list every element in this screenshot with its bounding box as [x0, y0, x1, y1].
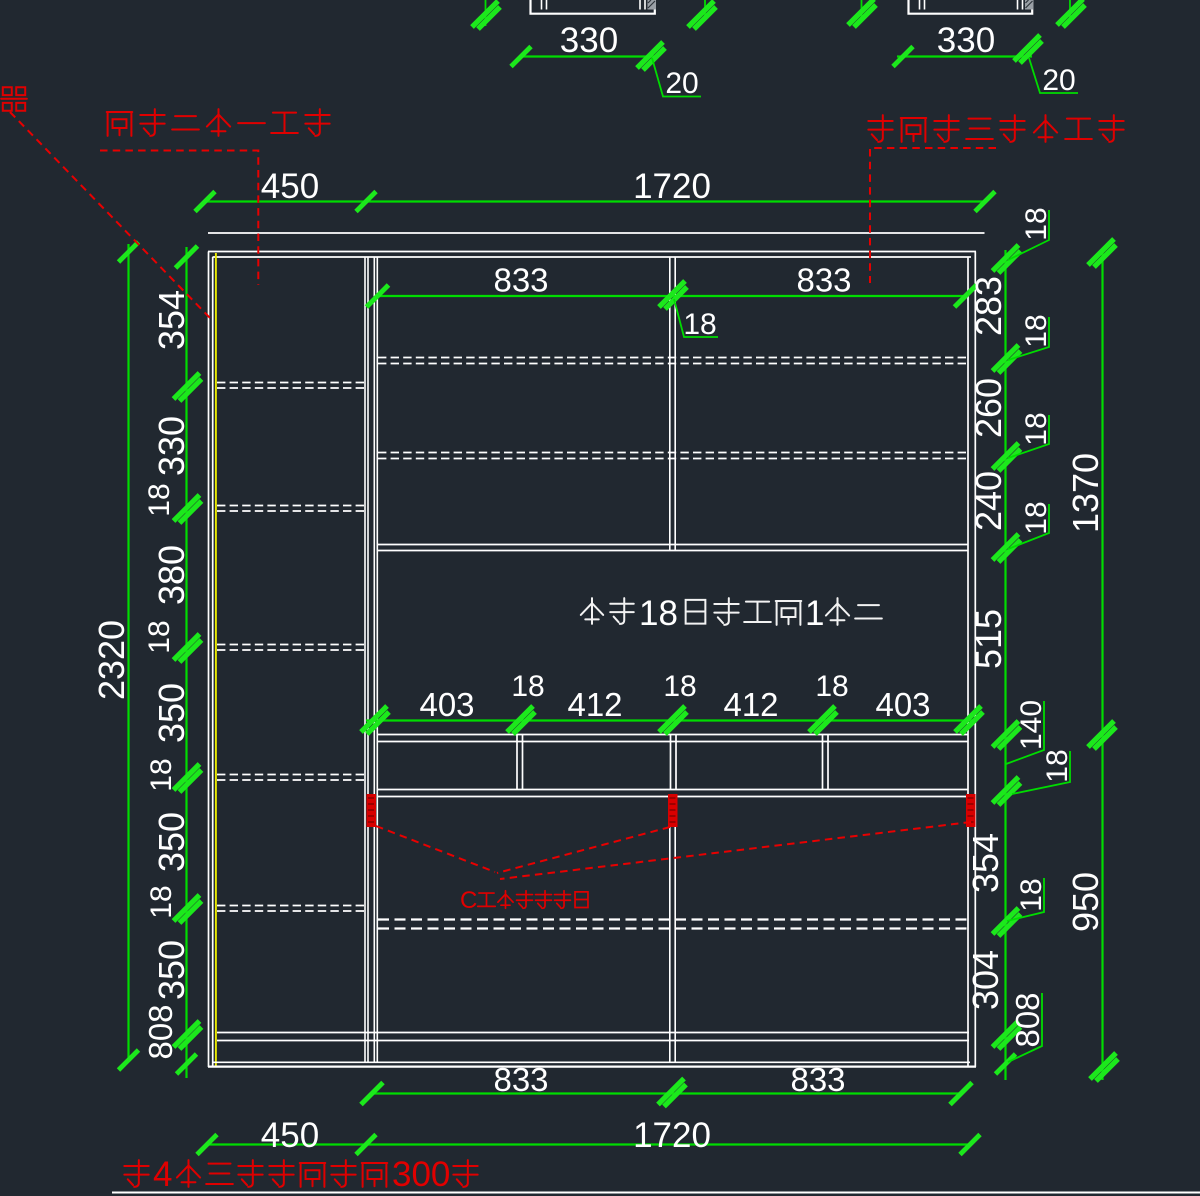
- svg-text:833: 833: [493, 1061, 548, 1098]
- svg-text:412: 412: [723, 686, 778, 723]
- svg-text:412: 412: [567, 686, 622, 723]
- svg-text:18: 18: [663, 670, 696, 703]
- svg-text:18: 18: [145, 885, 178, 918]
- svg-text:140: 140: [1015, 700, 1048, 750]
- svg-text:808: 808: [1009, 992, 1046, 1047]
- svg-text:18: 18: [143, 620, 176, 653]
- svg-text:18: 18: [143, 483, 176, 516]
- svg-text:950: 950: [1065, 872, 1106, 932]
- svg-text:1370: 1370: [1065, 453, 1106, 533]
- svg-text:833: 833: [493, 262, 548, 299]
- svg-text:330: 330: [937, 21, 995, 60]
- svg-text:450: 450: [261, 1116, 319, 1155]
- svg-text:403: 403: [875, 686, 930, 723]
- svg-text:240: 240: [968, 471, 1009, 531]
- svg-text:18: 18: [1020, 314, 1053, 347]
- svg-text:18: 18: [145, 758, 178, 791]
- svg-text:833: 833: [790, 1061, 845, 1098]
- svg-text:18: 18: [683, 308, 716, 341]
- svg-text:18: 18: [639, 594, 678, 633]
- svg-text:450: 450: [261, 167, 319, 206]
- svg-text:260: 260: [968, 378, 1009, 438]
- svg-text:354: 354: [965, 833, 1006, 893]
- svg-text:18: 18: [1041, 749, 1074, 782]
- svg-text:20: 20: [665, 67, 698, 100]
- svg-text:2320: 2320: [91, 620, 132, 700]
- svg-text:18: 18: [1015, 878, 1048, 911]
- svg-text:330: 330: [560, 21, 618, 60]
- svg-text:18: 18: [511, 670, 544, 703]
- svg-text:354: 354: [151, 290, 192, 350]
- svg-text:20: 20: [1042, 64, 1075, 97]
- svg-text:18: 18: [1020, 412, 1053, 445]
- svg-text:283: 283: [968, 276, 1009, 336]
- svg-text:350: 350: [151, 812, 192, 872]
- svg-text:300: 300: [392, 1155, 450, 1194]
- svg-text:515: 515: [968, 609, 1009, 669]
- svg-text:1720: 1720: [633, 1116, 711, 1155]
- svg-text:18: 18: [1020, 501, 1053, 534]
- svg-text:304: 304: [965, 950, 1006, 1010]
- svg-text:4: 4: [153, 1155, 172, 1194]
- svg-text:380: 380: [151, 545, 192, 605]
- svg-text:808: 808: [142, 1004, 179, 1059]
- svg-text:833: 833: [796, 262, 851, 299]
- svg-text:C: C: [460, 887, 477, 914]
- svg-text:350: 350: [151, 683, 192, 743]
- svg-text:1: 1: [805, 594, 824, 633]
- svg-text:1720: 1720: [633, 167, 711, 206]
- svg-text:18: 18: [1020, 207, 1053, 240]
- svg-text:403: 403: [419, 686, 474, 723]
- svg-text:18: 18: [815, 670, 848, 703]
- svg-text:350: 350: [151, 940, 192, 1000]
- svg-text:330: 330: [151, 416, 192, 476]
